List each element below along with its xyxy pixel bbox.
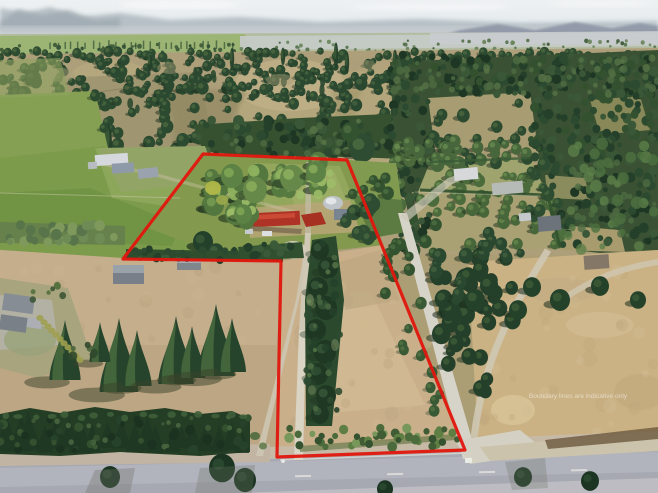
svg-text:Boundary lines are indicative: Boundary lines are indicative only	[529, 393, 628, 400]
